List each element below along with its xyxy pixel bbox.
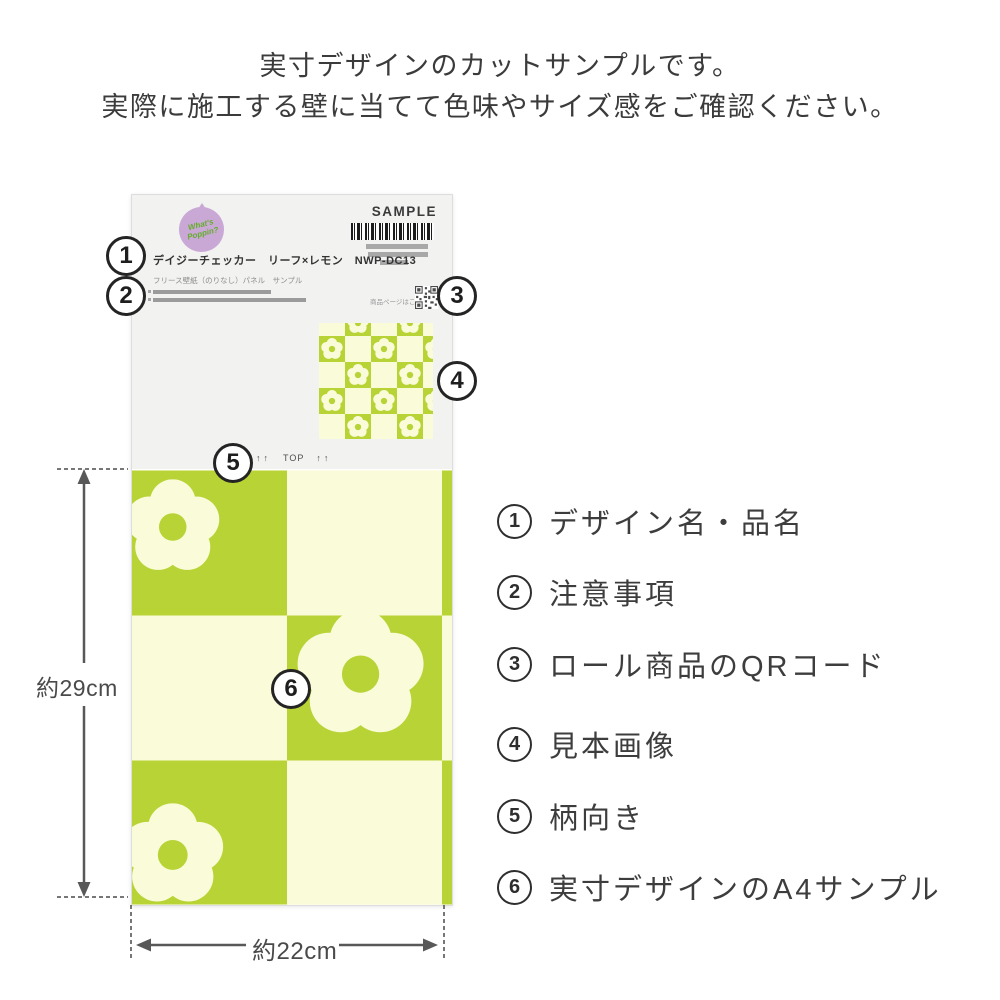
legend-number-2: 2 [497, 575, 532, 610]
legend-item-a4-sample: 6 実寸デザインのA4サンプル [497, 869, 942, 905]
legend-label-6: 実寸デザインのA4サンプル [549, 866, 942, 908]
sample-sheet: What's Poppin? SAMPLE デイジーチェッカー リーフ×レモン … [131, 194, 453, 906]
brand-logo-badge: What's Poppin? [179, 207, 224, 252]
legend-number-6: 6 [497, 870, 532, 905]
product-name: デイジーチェッカー リーフ×レモン NWP-DC13 [153, 252, 416, 268]
legend-label-1: デザイン名・品名 [549, 500, 805, 542]
callout-badge-1: 1 [106, 236, 146, 276]
legend-label-5: 柄向き [549, 795, 645, 837]
height-dimension-label: 約29cm [34, 669, 120, 703]
legend-item-qr-code: 3 ロール商品のQRコード [497, 646, 887, 682]
brand-logo-text: What's Poppin? [181, 216, 222, 242]
gray-bar [366, 244, 428, 249]
sample-label: SAMPLE [372, 204, 437, 219]
up-arrows-icon: ↑↑ [256, 453, 271, 463]
legend-item-notes: 2 注意事項 [497, 574, 677, 610]
legend-item-sample-image: 4 見本画像 [497, 726, 677, 762]
legend-number-3: 3 [497, 647, 532, 682]
note-bullet [148, 290, 151, 293]
up-arrows-icon: ↑↑ [316, 453, 331, 463]
pattern-orientation-indicator: ↑↑ TOP ↑↑ [256, 453, 331, 463]
width-dimension-label: 約22cm [250, 931, 339, 966]
legend-number-4: 4 [497, 727, 532, 762]
note-bullet [148, 298, 151, 301]
qr-code [415, 286, 438, 309]
legend-label-2: 注意事項 [549, 571, 677, 613]
intro-text: 実寸デザインのカットサンプルです。 実際に施工する壁に当てて色味やサイズ感をご確… [0, 46, 1000, 128]
note-placeholder-line [153, 298, 306, 302]
callout-badge-3: 3 [437, 276, 477, 316]
note-placeholder-line [153, 290, 271, 294]
legend-label-3: ロール商品のQRコード [549, 643, 887, 685]
intro-line-2: 実際に施工する壁に当てて色味やサイズ感をご確認ください。 [0, 87, 1000, 128]
legend-item-design-name: 1 デザイン名・品名 [497, 503, 805, 539]
barcode [351, 223, 434, 240]
product-info-image: 実寸デザインのカットサンプルです。 実際に施工する壁に当てて色味やサイズ感をご確… [0, 0, 1000, 1000]
legend-number-1: 1 [497, 504, 532, 539]
badge-spike-decoration [198, 203, 206, 209]
sheet-label-area: What's Poppin? SAMPLE デイジーチェッカー リーフ×レモン … [132, 195, 452, 469]
product-subtitle: フリース壁紙（のりなし）パネル サンプル [153, 275, 302, 286]
legend-item-pattern-direction: 5 柄向き [497, 798, 645, 834]
callout-badge-2: 2 [106, 276, 146, 316]
intro-line-1: 実寸デザインのカットサンプルです。 [0, 46, 1000, 87]
callout-badge-6: 6 [271, 669, 311, 709]
orientation-top-label: TOP [283, 453, 304, 463]
callout-badge-5: 5 [213, 443, 253, 483]
legend-label-4: 見本画像 [549, 723, 677, 765]
legend-number-5: 5 [497, 799, 532, 834]
callout-badge-4: 4 [437, 361, 477, 401]
pattern-thumbnail [319, 323, 433, 439]
